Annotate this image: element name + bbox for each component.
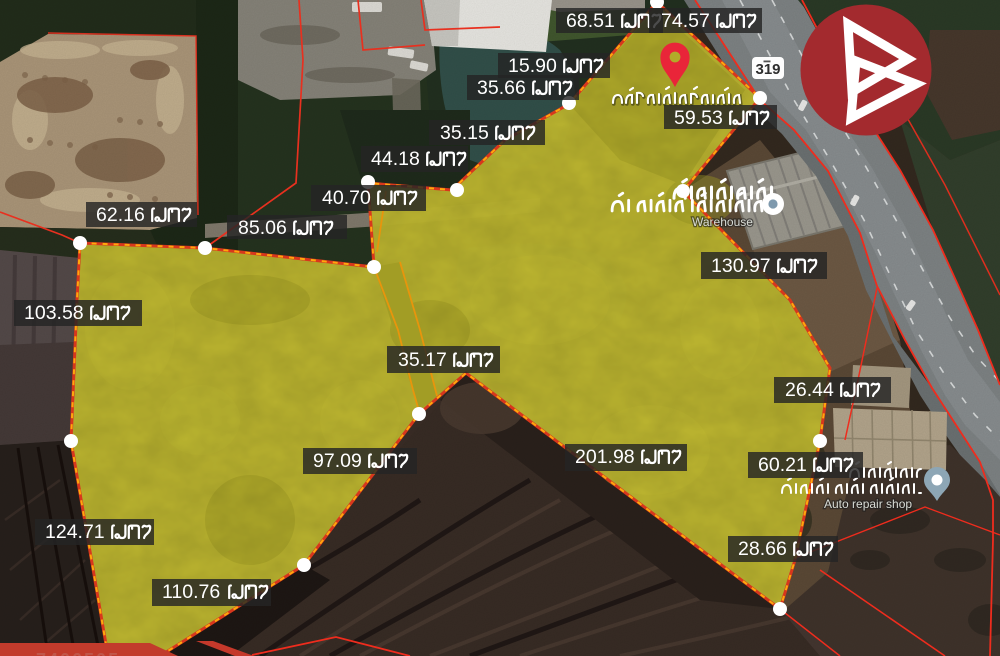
svg-text:35.66: 35.66 — [477, 77, 526, 99]
svg-text:319: 319 — [755, 61, 780, 78]
svg-text:28.66: 28.66 — [738, 538, 787, 560]
svg-text:59.53: 59.53 — [674, 107, 723, 129]
svg-text:201.98: 201.98 — [575, 446, 635, 468]
svg-text:103.58: 103.58 — [24, 302, 84, 324]
svg-text:85.06: 85.06 — [238, 217, 287, 239]
svg-text:44.18: 44.18 — [371, 148, 420, 170]
svg-text:97.09: 97.09 — [313, 450, 362, 472]
svg-text:Auto repair shop: Auto repair shop — [824, 497, 912, 511]
svg-text:35.17: 35.17 — [398, 349, 447, 371]
svg-text:40.70: 40.70 — [322, 187, 371, 209]
svg-text:60.21: 60.21 — [758, 454, 807, 476]
svg-text:35.15: 35.15 — [440, 122, 489, 144]
svg-text:74.57: 74.57 — [661, 10, 710, 32]
svg-text:7406505: 7406505 — [36, 650, 120, 656]
svg-text:130.97: 130.97 — [711, 255, 771, 277]
svg-text:68.51: 68.51 — [566, 10, 615, 32]
svg-text:62.16: 62.16 — [96, 204, 145, 226]
svg-text:124.71: 124.71 — [45, 521, 105, 543]
svg-text:26.44: 26.44 — [785, 379, 834, 401]
svg-text:110.76: 110.76 — [162, 581, 220, 603]
svg-text:15.90: 15.90 — [508, 55, 557, 77]
svg-text:Warehouse: Warehouse — [692, 215, 753, 229]
